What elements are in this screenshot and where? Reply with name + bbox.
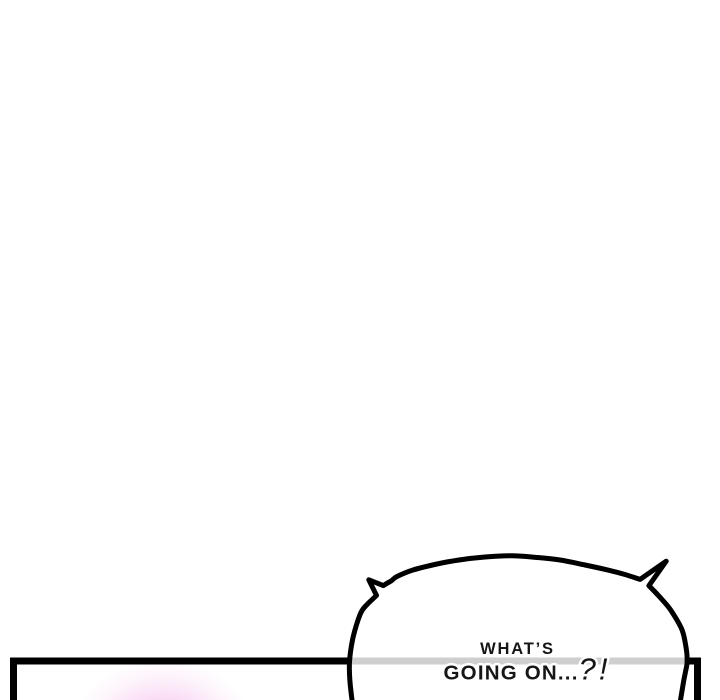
svg-text:WHAT’S: WHAT’S: [480, 640, 555, 658]
